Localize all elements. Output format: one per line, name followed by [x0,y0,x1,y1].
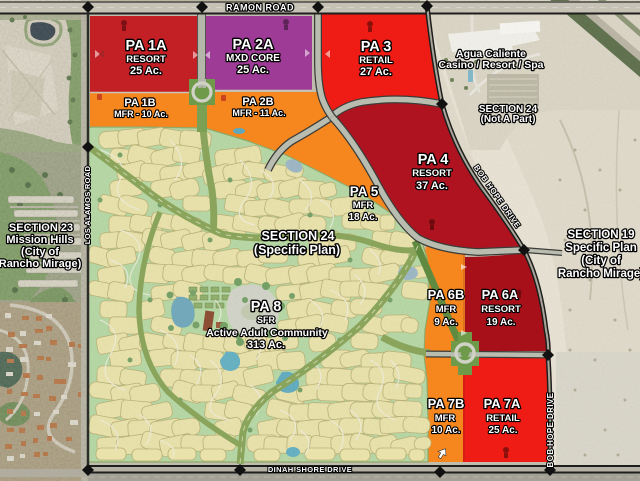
svg-text:RESORT: RESORT [481,304,521,315]
svg-text:313 Ac.: 313 Ac. [247,339,285,351]
svg-text:Casino / Resort / Spa: Casino / Resort / Spa [438,59,543,71]
svg-text:MXD CORE: MXD CORE [226,53,280,64]
svg-text:Active Adult Community: Active Adult Community [206,327,328,339]
svg-text:PA 6B: PA 6B [428,287,465,302]
svg-text:PA 2A: PA 2A [232,37,274,53]
svg-text:SECTION 19: SECTION 19 [567,229,634,241]
svg-text:27 Ac.: 27 Ac. [360,66,392,78]
svg-text:MFR - 11 Ac.: MFR - 11 Ac. [232,108,285,118]
svg-text:PA 5: PA 5 [350,184,379,199]
svg-text:18 Ac.: 18 Ac. [348,212,377,223]
svg-text:PA 7A: PA 7A [484,396,521,411]
svg-text:25 Ac.: 25 Ac. [488,425,517,436]
svg-text:PA 3: PA 3 [361,39,392,55]
svg-text:MFR - 10 Ac.: MFR - 10 Ac. [114,109,168,119]
svg-text:Mission Hills: Mission Hills [6,234,73,246]
svg-text:PA 8: PA 8 [251,299,282,315]
svg-text:(Not A Part): (Not A Part) [481,114,536,125]
svg-text:25 Ac.: 25 Ac. [130,65,162,77]
svg-text:MFR: MFR [353,200,374,211]
svg-text:(Specific Plan): (Specific Plan) [254,243,340,257]
svg-text:PA 4: PA 4 [418,152,449,168]
svg-text:RAMON ROAD: RAMON ROAD [226,3,294,13]
svg-text:Rancho Mirage): Rancho Mirage) [558,268,640,280]
svg-text:Specific Plan: Specific Plan [565,242,637,254]
svg-text:BOB HOPE DRIVE: BOB HOPE DRIVE [546,392,555,467]
svg-text:(City of: (City of [21,246,59,258]
svg-text:RESORT: RESORT [412,168,452,179]
svg-text:PA 1B: PA 1B [124,97,155,109]
svg-text:MFR: MFR [436,304,457,315]
svg-text:(City of: (City of [581,255,621,267]
svg-text:SFR: SFR [257,315,276,325]
svg-text:DINAH SHORE DRIVE: DINAH SHORE DRIVE [268,465,352,474]
svg-text:25 Ac.: 25 Ac. [237,64,269,76]
svg-text:PA 2B: PA 2B [242,96,273,108]
svg-text:SECTION 23: SECTION 23 [9,222,73,234]
svg-text:Rancho Mirage): Rancho Mirage) [0,258,82,270]
svg-text:RETAIL: RETAIL [359,55,393,66]
svg-text:PA 1A: PA 1A [125,38,167,54]
svg-text:PA 6A: PA 6A [482,287,519,302]
svg-text:MFR: MFR [435,413,456,424]
svg-text:10 Ac.: 10 Ac. [431,425,460,436]
svg-text:SECTION 24: SECTION 24 [262,229,335,243]
svg-text:19 Ac.: 19 Ac. [486,317,515,328]
svg-text:37 Ac.: 37 Ac. [416,180,448,192]
svg-text:RETAIL: RETAIL [486,413,520,424]
svg-text:9 Ac.: 9 Ac. [434,317,458,328]
svg-text:RESORT: RESORT [126,54,166,65]
svg-text:PA 7B: PA 7B [428,396,465,411]
svg-text:LOS ALAMOS ROAD: LOS ALAMOS ROAD [83,166,92,245]
